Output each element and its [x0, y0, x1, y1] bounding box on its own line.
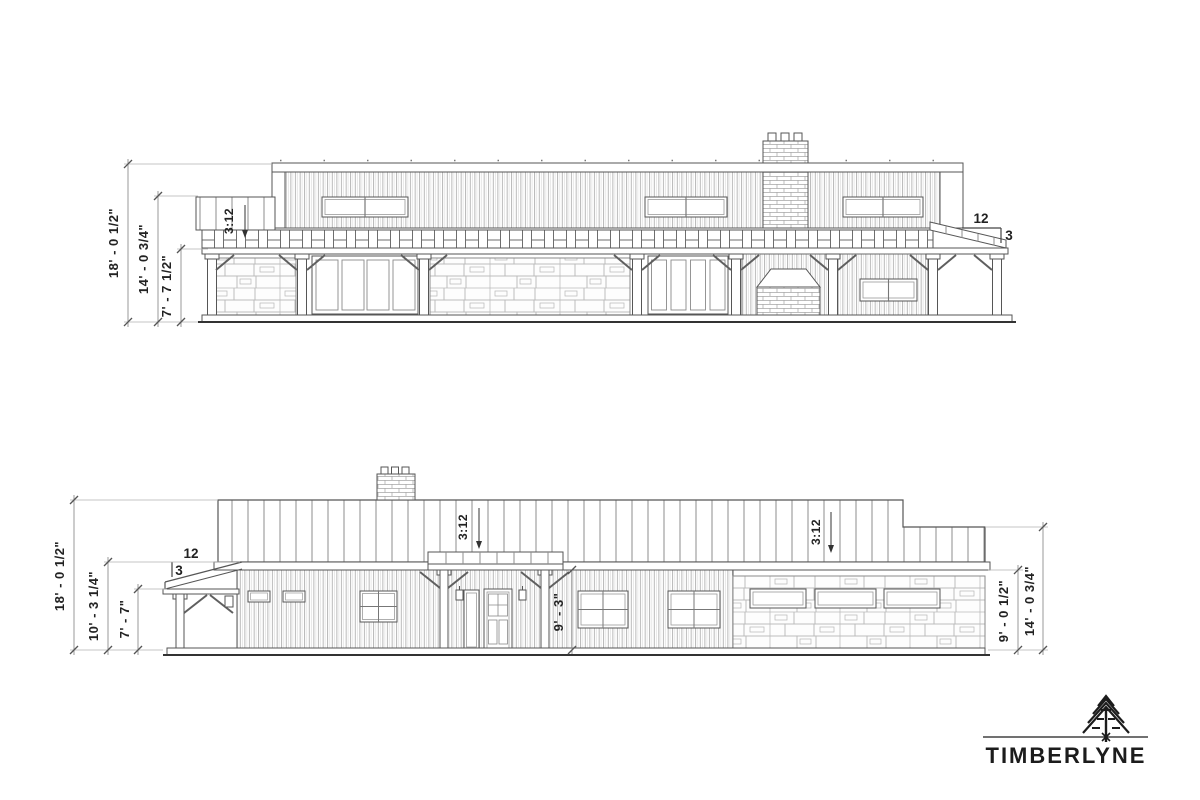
window	[578, 591, 628, 628]
rafter-band	[202, 230, 933, 248]
sliding-glass-door	[312, 256, 418, 314]
chimney	[763, 133, 808, 228]
slope-rise-label: 3	[175, 563, 183, 578]
slope-run-label: 12	[183, 546, 198, 561]
wall-corner-trim-right	[940, 172, 963, 228]
slab-edge	[167, 648, 985, 655]
eave-fascia	[214, 562, 990, 570]
main-roof	[218, 500, 985, 562]
outdoor-fireplace	[757, 269, 820, 315]
porch-wall-window	[860, 279, 917, 301]
clerestory-window	[322, 197, 408, 217]
slope-label: 3:12	[222, 208, 236, 234]
slab-edge	[202, 315, 1012, 322]
dim-mid-height-label: 14' - 0 3/4"	[136, 224, 151, 294]
brand-wordmark: TIMBERLYNE	[986, 743, 1147, 768]
stone-wall	[430, 258, 630, 315]
front-dimensions-right: 9' - 0 1/2" 14' - 0 3/4"	[985, 522, 1048, 655]
dim-porch-height-label: 7' - 7"	[117, 600, 132, 639]
dim-entry-wall-label: 9' - 3"	[551, 593, 566, 632]
elevation-drawings-canvas: 18' - 0 1/2" 14' - 0 3/4" 7' - 7 1/2" 3:…	[0, 0, 1200, 800]
porch-lantern	[225, 596, 233, 607]
small-window	[283, 591, 305, 602]
garage-window	[884, 589, 940, 608]
slope-rise-label: 3	[1005, 228, 1013, 243]
dim-right-mid-label: 14' - 0 3/4"	[1022, 566, 1037, 636]
garage-window	[750, 589, 806, 608]
dim-overall-height-label: 18' - 0 1/2"	[52, 541, 67, 611]
entry-porch-roof	[428, 552, 563, 570]
dim-right-wall-label: 9' - 0 1/2"	[996, 580, 1011, 642]
front-elevation-drawing: 3:12 3:12 12 3	[52, 467, 1048, 655]
rear-elevation-drawing: 18' - 0 1/2" 14' - 0 3/4" 7' - 7 1/2" 3:…	[106, 133, 1016, 327]
window	[360, 591, 397, 622]
window	[668, 591, 720, 628]
entry-door	[478, 589, 518, 652]
chimney	[377, 467, 415, 500]
porch-header-beam	[202, 248, 1008, 254]
right-porch-shed-roof	[930, 222, 1006, 248]
dim-porch-height-label: 7' - 7 1/2"	[159, 255, 174, 317]
sliding-glass-door	[648, 256, 728, 314]
slope-label: 3:12	[809, 519, 823, 545]
small-window	[248, 591, 270, 602]
slope-label: 3:12	[456, 514, 470, 540]
stone-wall	[216, 258, 296, 315]
roof-fascia	[272, 163, 963, 172]
front-dimensions-left: 18' - 0 1/2" 10' - 3 1/4" 7' - 7"	[52, 495, 240, 655]
garage-stone-wall	[733, 576, 985, 648]
entry-sidelite	[464, 590, 479, 650]
clerestory-window	[645, 197, 727, 217]
drawing-sheet: 18' - 0 1/2" 14' - 0 3/4" 7' - 7 1/2" 3:…	[0, 0, 1200, 800]
pine-tree-icon	[1083, 696, 1129, 742]
garage-window	[815, 589, 876, 608]
slope-run-label: 12	[973, 211, 988, 226]
clerestory-window	[843, 197, 923, 217]
timberlyne-logo: TIMBERLYNE	[983, 696, 1148, 768]
dim-mid-height-label: 10' - 3 1/4"	[86, 571, 101, 641]
dim-overall-height-label: 18' - 0 1/2"	[106, 208, 121, 278]
